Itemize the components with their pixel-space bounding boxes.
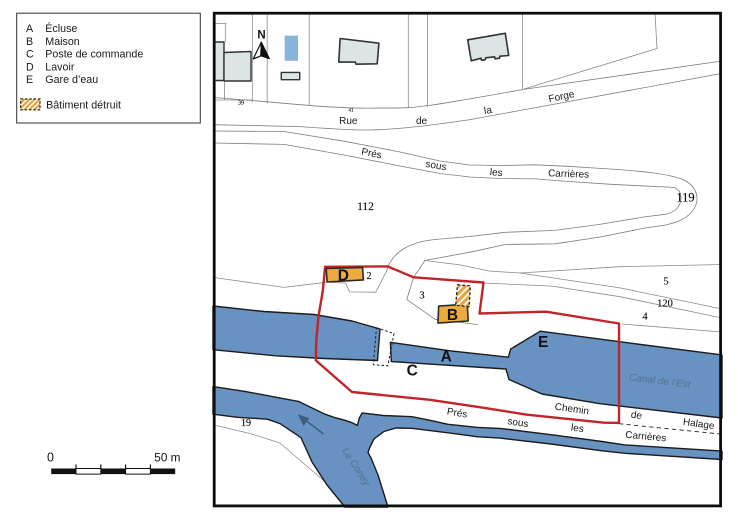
svg-text:C: C <box>407 362 418 379</box>
svg-text:Bâtiment détruit: Bâtiment détruit <box>46 99 121 111</box>
svg-text:3: 3 <box>419 291 424 302</box>
svg-text:Rue: Rue <box>339 116 358 127</box>
svg-text:112: 112 <box>357 201 374 213</box>
svg-text:119: 119 <box>676 191 694 205</box>
svg-text:N: N <box>257 30 265 42</box>
svg-text:19: 19 <box>241 418 251 429</box>
svg-text:Carrières: Carrières <box>548 168 589 180</box>
svg-text:Maison: Maison <box>45 36 80 48</box>
svg-text:les: les <box>489 167 503 179</box>
svg-text:0: 0 <box>47 451 54 465</box>
svg-text:A: A <box>26 23 34 35</box>
svg-text:de: de <box>416 116 428 127</box>
svg-text:A: A <box>441 349 452 366</box>
svg-text:B: B <box>26 36 33 48</box>
svg-text:2: 2 <box>367 271 372 282</box>
svg-text:39: 39 <box>238 101 244 107</box>
svg-text:de: de <box>630 410 643 423</box>
svg-text:50 m: 50 m <box>154 451 180 465</box>
svg-text:E: E <box>538 334 548 351</box>
svg-text:Écluse: Écluse <box>45 22 77 35</box>
svg-text:Gare d’eau: Gare d’eau <box>45 74 98 86</box>
svg-text:les: les <box>570 422 584 435</box>
svg-text:120: 120 <box>657 299 673 310</box>
svg-text:D: D <box>338 267 349 284</box>
svg-text:Poste de commande: Poste de commande <box>45 49 143 61</box>
svg-text:5: 5 <box>663 277 668 288</box>
svg-text:4: 4 <box>642 312 648 323</box>
svg-text:E: E <box>26 74 33 86</box>
svg-text:B: B <box>447 307 458 324</box>
svg-text:D: D <box>26 61 34 73</box>
svg-text:C: C <box>26 49 34 61</box>
svg-text:41: 41 <box>349 109 355 114</box>
svg-text:Lavoir: Lavoir <box>45 61 75 73</box>
